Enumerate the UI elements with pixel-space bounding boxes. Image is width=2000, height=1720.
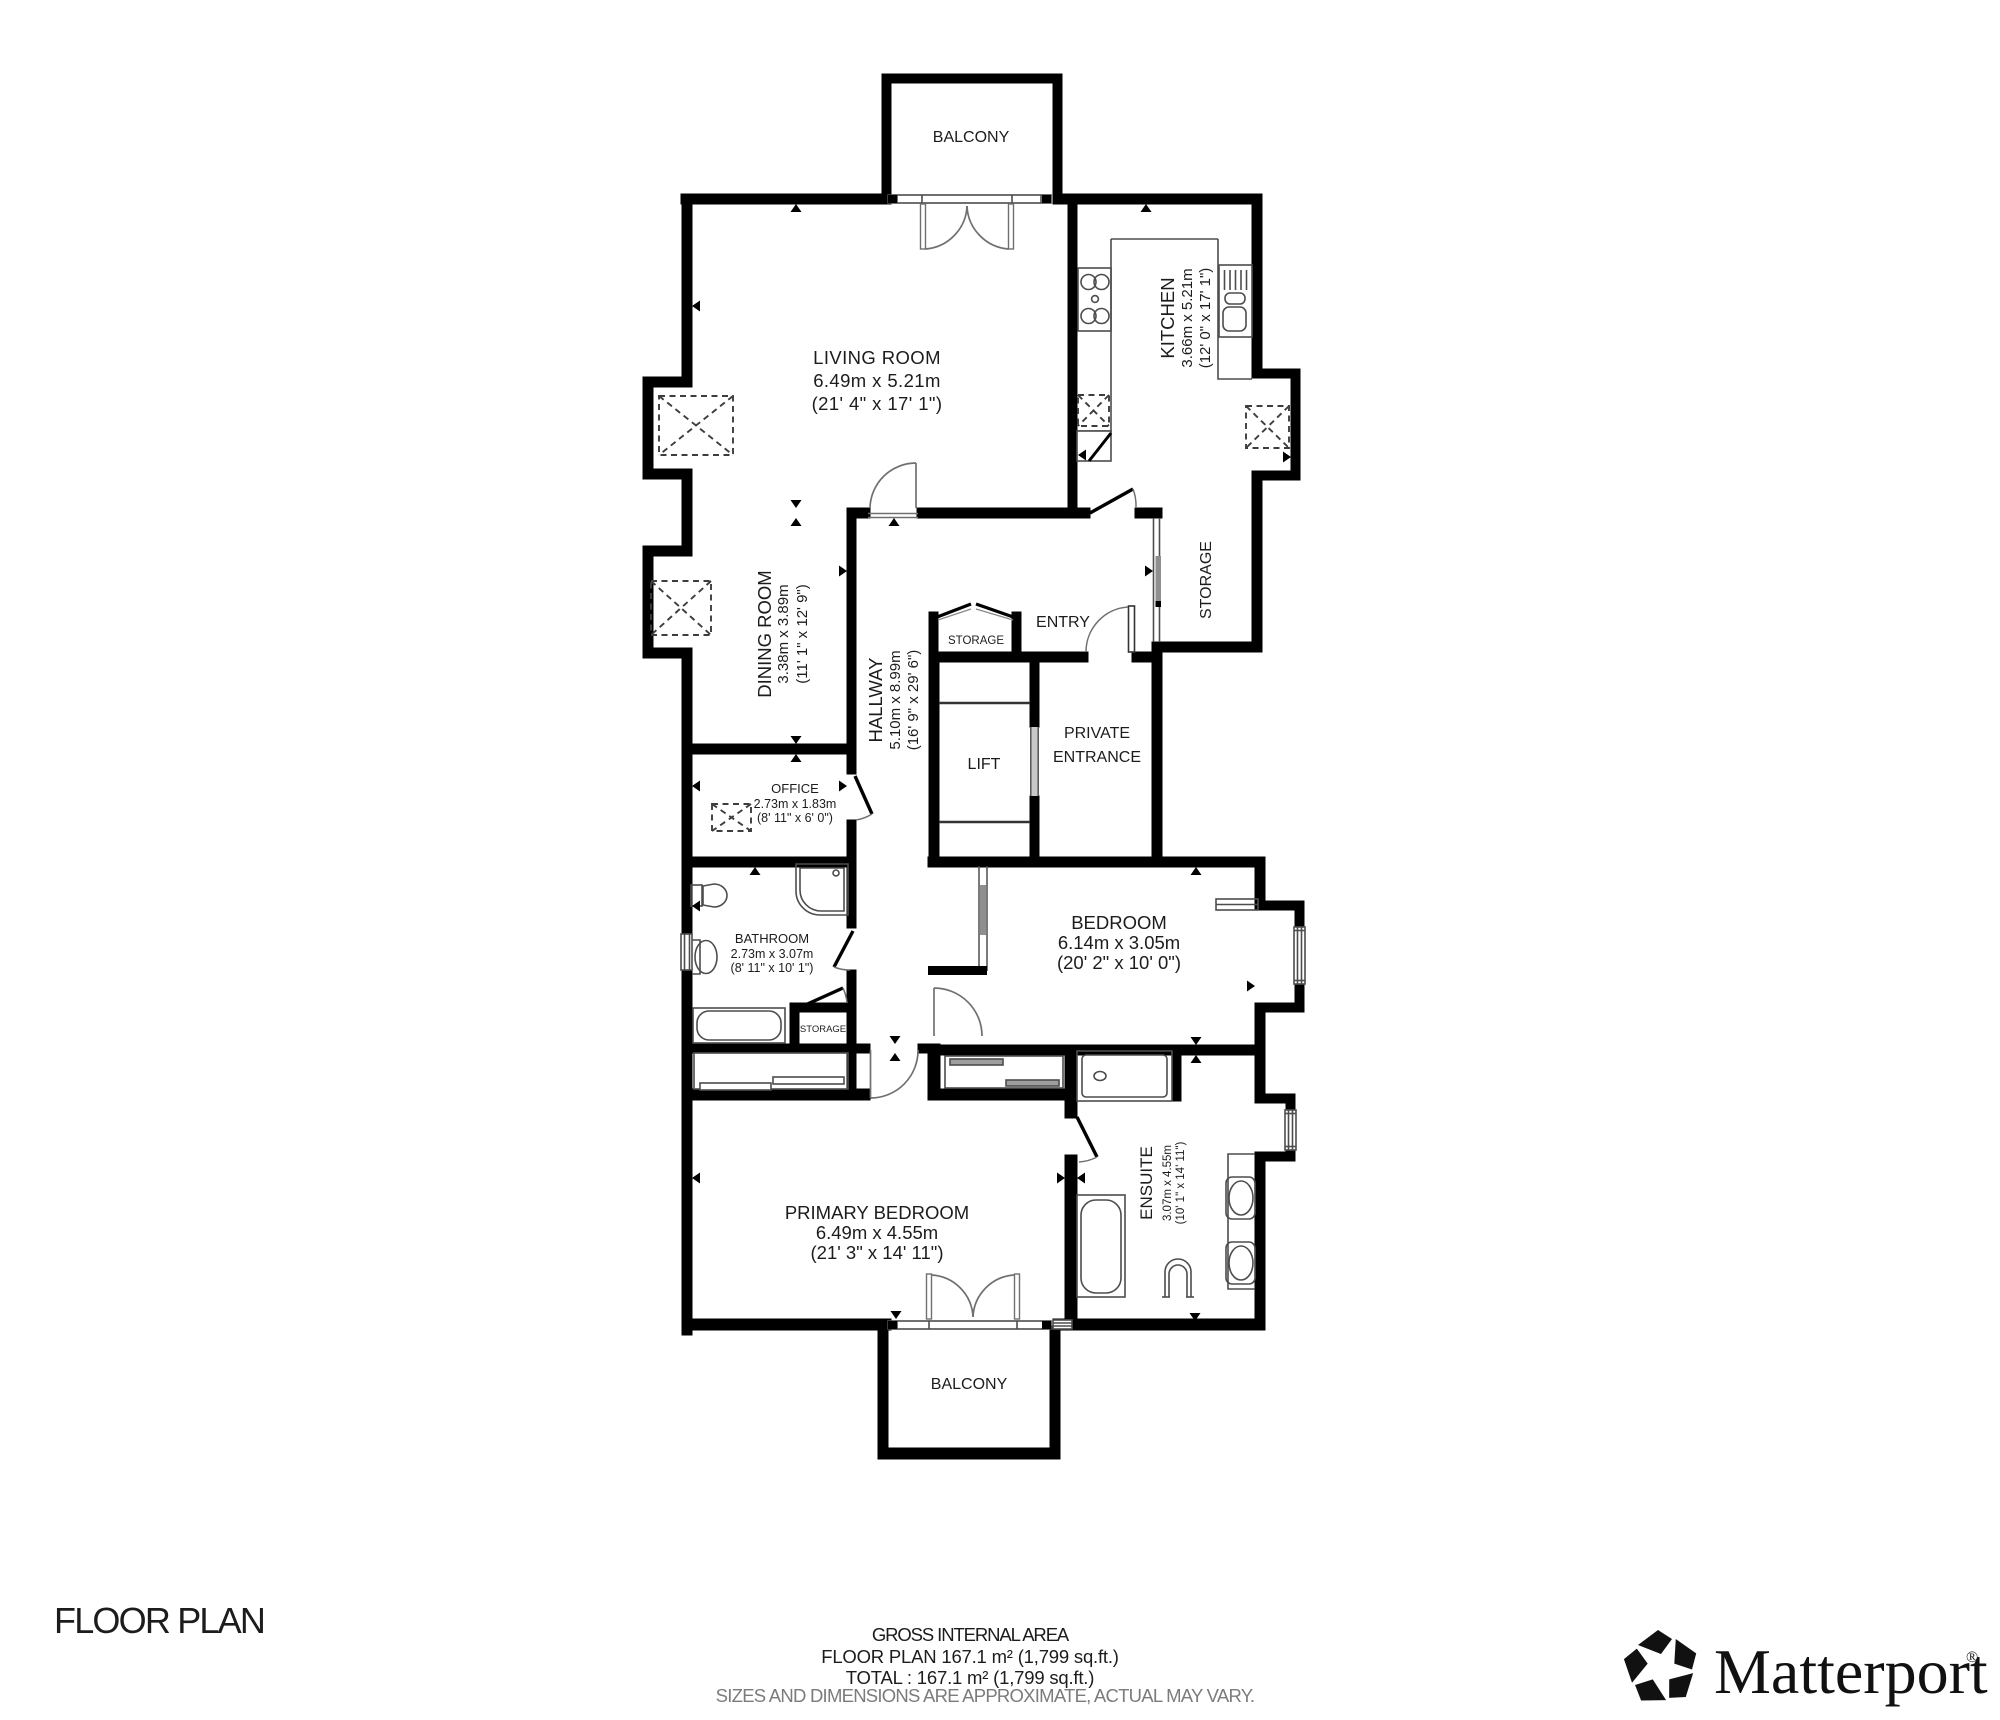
svg-text:LIVING ROOM: LIVING ROOM [813, 347, 941, 368]
svg-text:GROSS INTERNAL AREA: GROSS INTERNAL AREA [872, 1624, 1070, 1645]
svg-text:6.49m x 4.55m: 6.49m x 4.55m [816, 1222, 938, 1243]
svg-text:Matterport: Matterport [1714, 1636, 1988, 1707]
svg-text:(8' 11" x 10' 1"): (8' 11" x 10' 1") [731, 961, 814, 975]
svg-text:HALLWAY: HALLWAY [865, 658, 886, 743]
svg-text:BEDROOM: BEDROOM [1071, 912, 1167, 933]
svg-text:(12' 0" x 17' 1"): (12' 0" x 17' 1") [1197, 268, 1214, 369]
svg-text:(20' 2" x 10' 0"): (20' 2" x 10' 0") [1057, 952, 1181, 973]
svg-text:STORAGE: STORAGE [1198, 541, 1215, 619]
svg-text:DINING ROOM: DINING ROOM [754, 570, 775, 697]
svg-text:ENSUITE: ENSUITE [1137, 1146, 1156, 1220]
svg-text:FLOOR PLAN: FLOOR PLAN [54, 1600, 264, 1641]
svg-text:(21' 4" x 17' 1"): (21' 4" x 17' 1") [812, 393, 943, 414]
svg-text:PRIMARY BEDROOM: PRIMARY BEDROOM [785, 1202, 969, 1223]
svg-text:(21' 3" x 14' 11"): (21' 3" x 14' 11") [811, 1242, 944, 1263]
svg-text:(10' 1" x 14' 11"): (10' 1" x 14' 11") [1175, 1142, 1187, 1225]
svg-text:BATHROOM: BATHROOM [735, 931, 809, 946]
svg-text:SIZES AND DIMENSIONS ARE APPRO: SIZES AND DIMENSIONS ARE APPROXIMATE, AC… [716, 1685, 1255, 1706]
svg-text:(8' 11" x 6' 0"): (8' 11" x 6' 0") [757, 811, 833, 825]
svg-text:®: ® [1966, 1649, 1978, 1666]
svg-text:2.73m x 1.83m: 2.73m x 1.83m [754, 797, 837, 811]
svg-text:3.66m x 5.21m: 3.66m x 5.21m [1179, 268, 1196, 367]
svg-text:FLOOR PLAN 167.1 m² (1,799 sq.: FLOOR PLAN 167.1 m² (1,799 sq.ft.) [821, 1646, 1119, 1667]
svg-text:STORAGE: STORAGE [948, 635, 1004, 647]
svg-text:3.38m x 3.89m: 3.38m x 3.89m [775, 584, 792, 683]
svg-text:(11' 1" x 12' 9"): (11' 1" x 12' 9") [794, 584, 811, 683]
svg-text:ENTRY: ENTRY [1036, 614, 1090, 631]
svg-text:3.07m x 4.55m: 3.07m x 4.55m [1162, 1145, 1174, 1221]
svg-text:STORAGE: STORAGE [800, 1024, 846, 1035]
svg-text:ENTRANCE: ENTRANCE [1053, 749, 1141, 766]
svg-text:6.49m x 5.21m: 6.49m x 5.21m [813, 370, 941, 391]
svg-text:6.14m x 3.05m: 6.14m x 3.05m [1058, 932, 1180, 953]
svg-text:2.73m x 3.07m: 2.73m x 3.07m [731, 947, 814, 961]
svg-text:OFFICE: OFFICE [771, 781, 819, 796]
svg-text:5.10m x 8.99m: 5.10m x 8.99m [887, 650, 904, 749]
svg-text:LIFT: LIFT [968, 756, 1001, 773]
svg-text:BALCONY: BALCONY [933, 129, 1010, 146]
svg-text:(16' 9" x 29' 6"): (16' 9" x 29' 6") [905, 650, 922, 751]
svg-text:BALCONY: BALCONY [931, 1376, 1008, 1393]
svg-text:PRIVATE: PRIVATE [1064, 725, 1130, 742]
svg-text:KITCHEN: KITCHEN [1157, 277, 1178, 358]
